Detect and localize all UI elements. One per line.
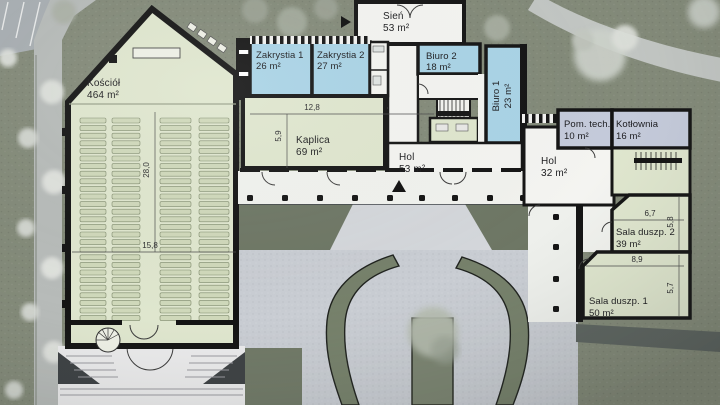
photo-lighting-overlay: [0, 0, 720, 405]
site-plan-svg: Kościół 464 m² Zakrystia 1 26 m² Zakryst…: [0, 0, 720, 405]
floor-plan-photo: Kościół 464 m² Zakrystia 1 26 m² Zakryst…: [0, 0, 720, 405]
